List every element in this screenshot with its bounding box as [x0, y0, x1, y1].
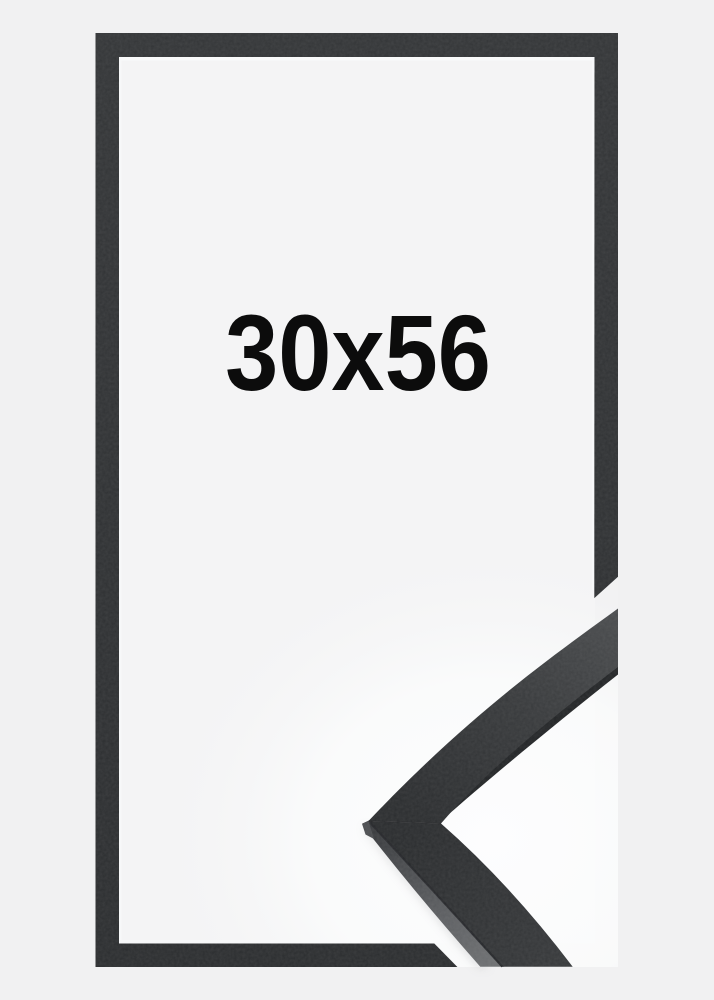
svg-text:30x56: 30x56 [225, 293, 491, 414]
